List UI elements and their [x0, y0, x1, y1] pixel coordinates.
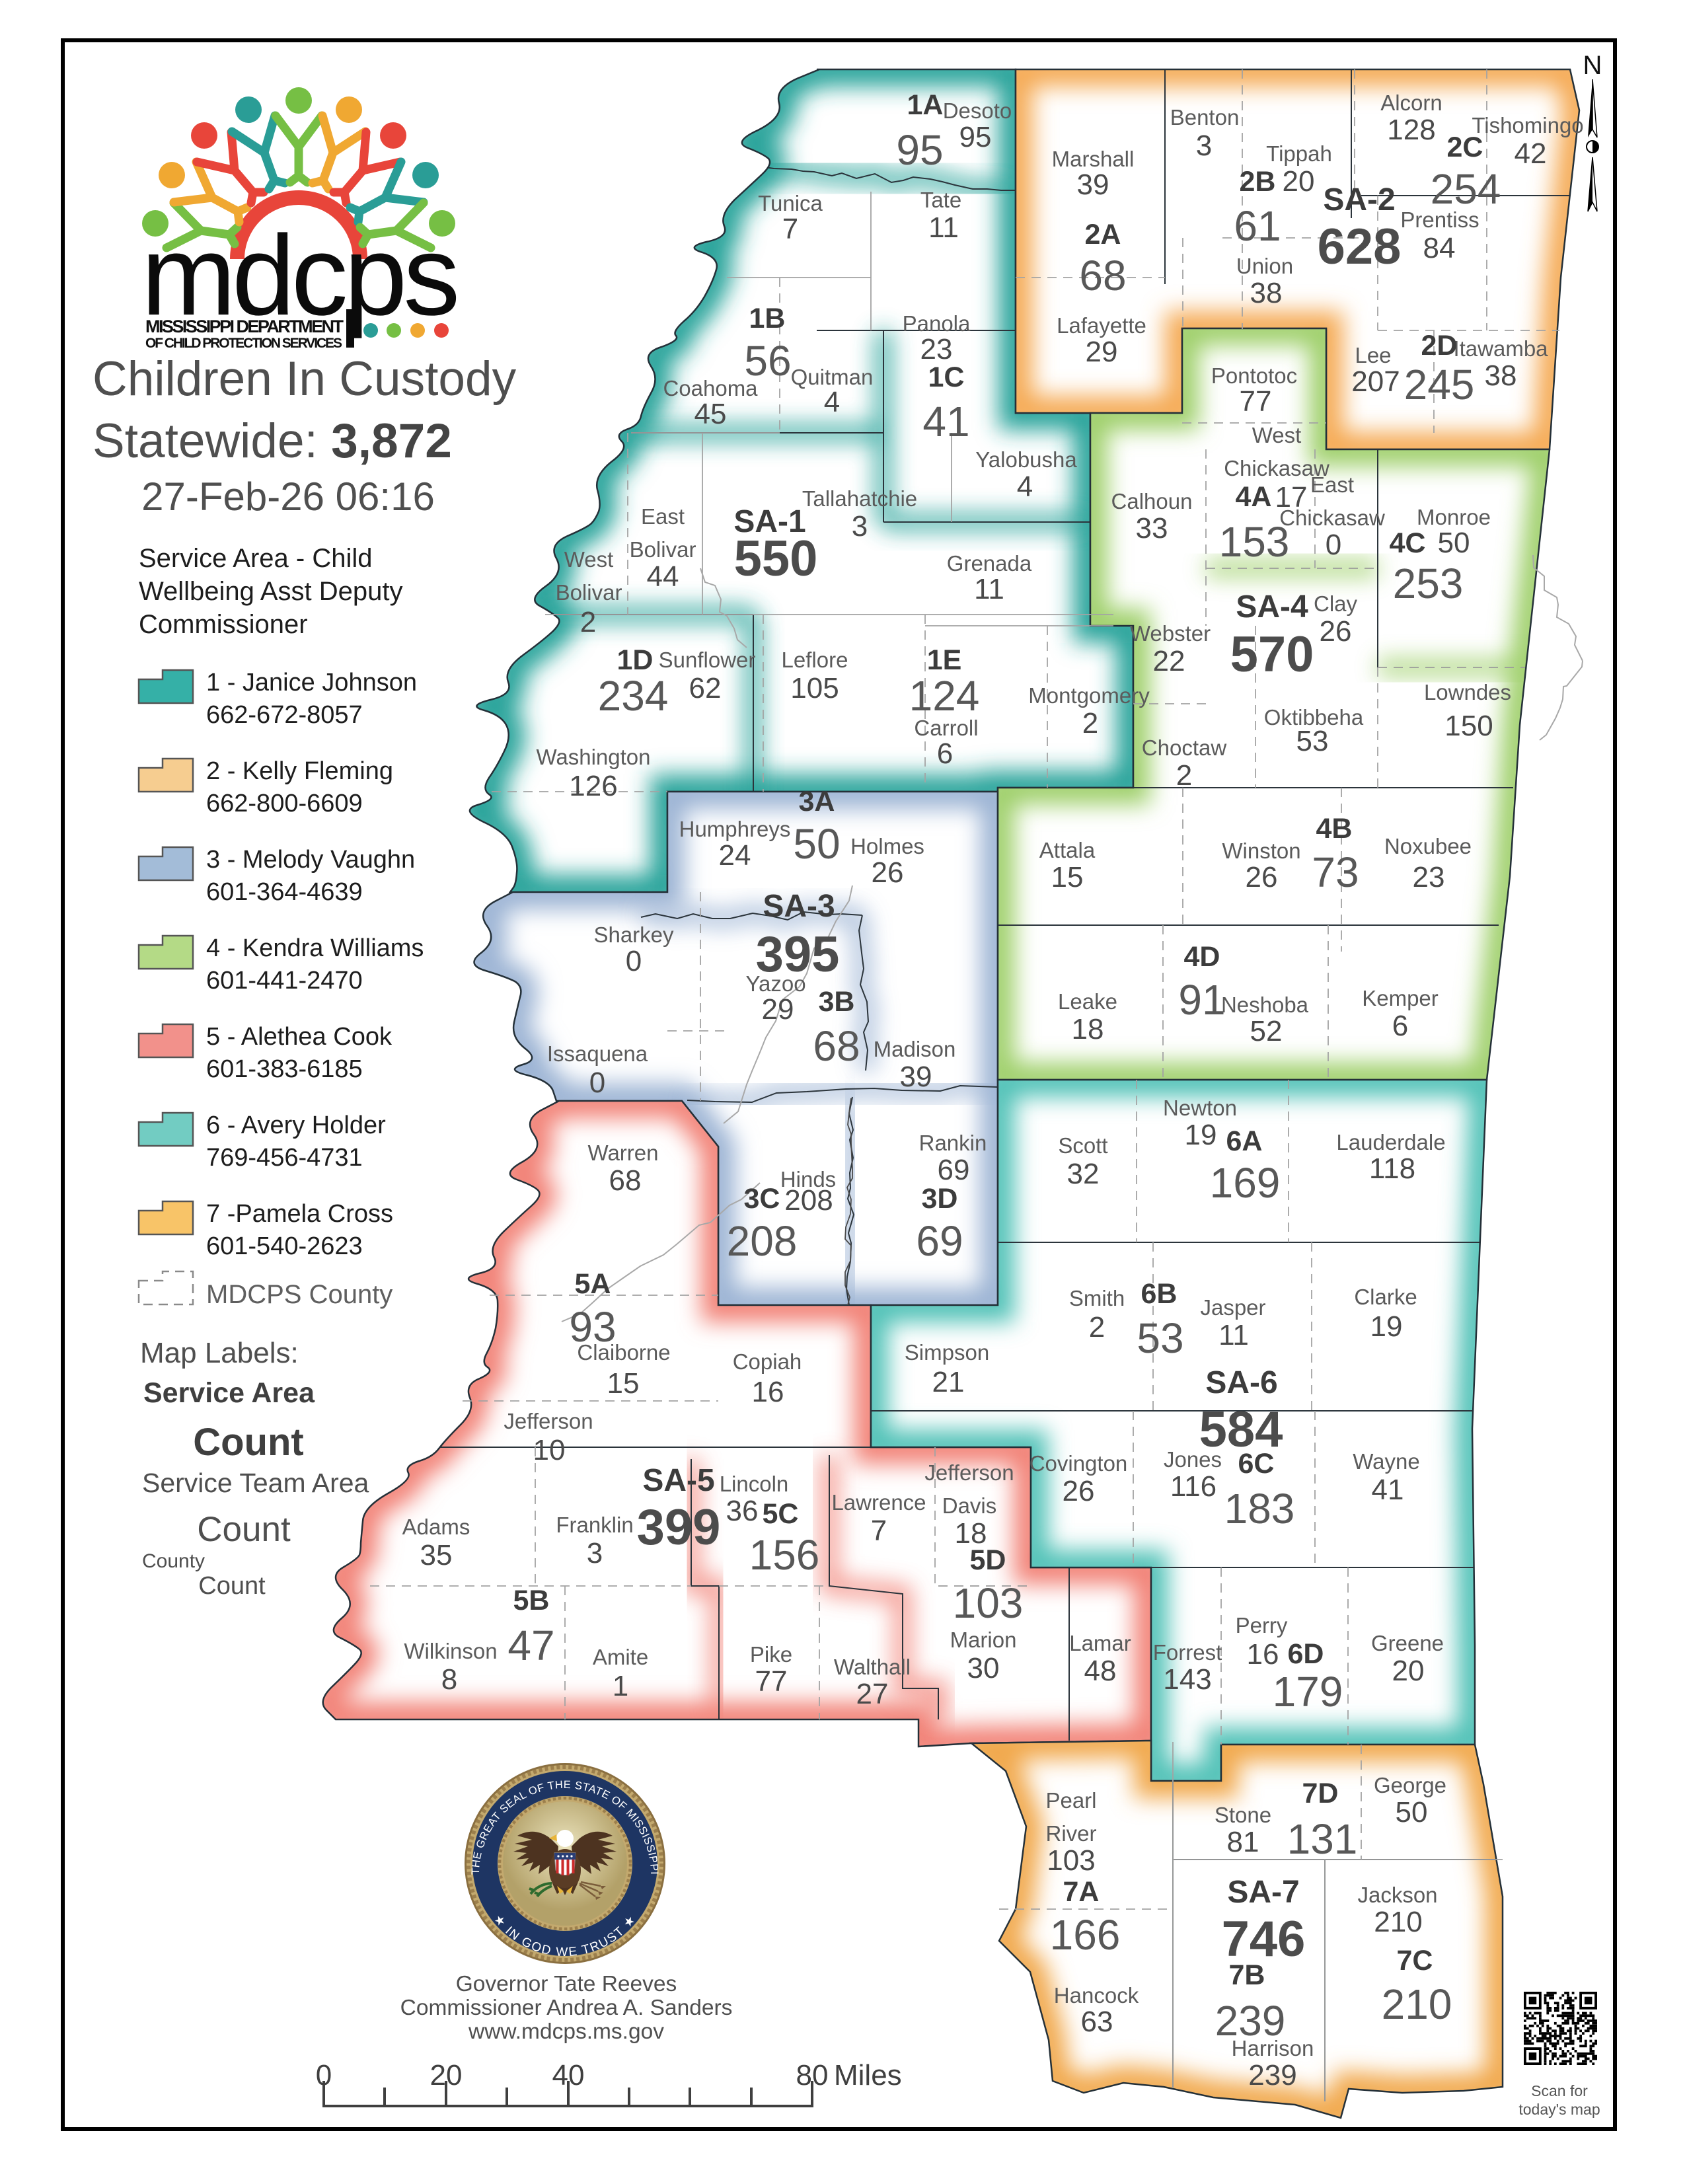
svg-text:Walthall: Walthall [834, 1655, 911, 1679]
svg-text:91: 91 [1178, 976, 1225, 1024]
svg-text:Pike: Pike [750, 1642, 792, 1667]
svg-text:1C: 1C [928, 361, 965, 393]
svg-text:166: 166 [1050, 1911, 1121, 1959]
svg-text:16: 16 [1247, 1638, 1279, 1671]
svg-text:Union: Union [1236, 254, 1293, 278]
svg-text:Panola: Panola [903, 311, 971, 336]
svg-text:19: 19 [1370, 1310, 1403, 1343]
svg-text:Attala: Attala [1039, 838, 1096, 862]
svg-text:Lee: Lee [1355, 343, 1391, 367]
svg-text:47: 47 [507, 1622, 554, 1669]
svg-text:234: 234 [598, 672, 669, 720]
svg-text:Miles: Miles [834, 2059, 902, 2091]
svg-text:River: River [1045, 1821, 1096, 1846]
svg-text:210: 210 [1374, 1906, 1422, 1938]
svg-text:SA-4: SA-4 [1236, 589, 1308, 624]
svg-text:Madison: Madison [874, 1037, 956, 1061]
svg-text:23: 23 [1413, 861, 1445, 893]
svg-text:Franklin: Franklin [556, 1513, 633, 1537]
svg-text:27: 27 [856, 1678, 889, 1710]
svg-text:2: 2 [1089, 1311, 1105, 1343]
svg-text:20: 20 [430, 2059, 463, 2091]
svg-text:Jackson: Jackson [1357, 1883, 1437, 1907]
svg-text:George: George [1374, 1773, 1446, 1797]
svg-text:126: 126 [569, 770, 617, 802]
svg-text:Chickasaw: Chickasaw [1279, 506, 1385, 530]
svg-text:Scan for: Scan for [1531, 2082, 1588, 2099]
svg-text:Clay: Clay [1314, 591, 1358, 616]
svg-text:Pontotoc: Pontotoc [1211, 363, 1297, 388]
svg-text:6 - Avery Holder: 6 - Avery Holder [206, 1111, 386, 1139]
svg-text:7: 7 [871, 1515, 887, 1547]
svg-text:SA-5: SA-5 [642, 1463, 714, 1498]
svg-text:2D: 2D [1421, 330, 1458, 361]
svg-text:3A: 3A [799, 786, 835, 817]
svg-text:Count: Count [197, 1510, 291, 1549]
svg-text:6: 6 [1392, 1010, 1408, 1042]
svg-text:Perry: Perry [1236, 1613, 1288, 1638]
svg-text:77: 77 [755, 1665, 788, 1698]
svg-text:746: 746 [1222, 1911, 1306, 1967]
svg-text:45: 45 [694, 398, 727, 430]
svg-text:103: 103 [1047, 1844, 1095, 1877]
svg-text:628: 628 [1318, 219, 1402, 275]
svg-text:Simpson: Simpson [905, 1340, 989, 1365]
svg-text:1 - Janice Johnson: 1 - Janice Johnson [206, 669, 417, 697]
svg-text:SA-7: SA-7 [1227, 1875, 1299, 1910]
svg-text:183: 183 [1224, 1485, 1295, 1532]
svg-text:21: 21 [932, 1366, 965, 1398]
svg-text:Humphreys: Humphreys [679, 817, 791, 841]
svg-text:50: 50 [793, 820, 840, 868]
svg-text:5A: 5A [575, 1268, 611, 1300]
svg-text:7D: 7D [1302, 1778, 1339, 1809]
svg-text:West: West [564, 547, 614, 572]
svg-text:www.mdcps.ms.gov: www.mdcps.ms.gov [468, 2019, 664, 2044]
svg-text:today's map: today's map [1518, 2101, 1600, 2118]
svg-text:570: 570 [1230, 626, 1314, 683]
svg-text:Marion: Marion [950, 1628, 1017, 1652]
svg-text:73: 73 [1312, 848, 1359, 896]
svg-text:Kemper: Kemper [1362, 986, 1439, 1010]
svg-text:Service Area: Service Area [143, 1377, 315, 1409]
svg-text:41: 41 [922, 398, 969, 445]
svg-text:Lowndes: Lowndes [1424, 680, 1511, 704]
svg-text:Bolivar: Bolivar [556, 580, 622, 605]
svg-text:53: 53 [1137, 1314, 1183, 1362]
svg-text:Lafayette: Lafayette [1057, 313, 1146, 338]
svg-text:Service Team Area: Service Team Area [142, 1468, 369, 1498]
svg-text:East: East [641, 504, 685, 529]
svg-text:SA-2: SA-2 [1323, 182, 1395, 217]
svg-text:Sharkey: Sharkey [593, 923, 674, 947]
svg-text:63: 63 [1081, 2006, 1113, 2038]
svg-text:93: 93 [569, 1303, 616, 1351]
svg-text:254: 254 [1431, 165, 1501, 213]
svg-text:11: 11 [1218, 1319, 1249, 1351]
svg-text:2: 2 [580, 606, 596, 638]
svg-text:Commissioner Andrea A. Sanders: Commissioner Andrea A. Sanders [400, 1996, 733, 2020]
svg-text:26: 26 [1246, 861, 1278, 893]
svg-text:7A: 7A [1063, 1876, 1100, 1908]
svg-text:Davis: Davis [942, 1493, 997, 1518]
svg-text:Scott: Scott [1058, 1133, 1107, 1158]
svg-text:Copiah: Copiah [733, 1349, 802, 1374]
svg-text:5D: 5D [970, 1544, 1006, 1576]
svg-text:36: 36 [726, 1495, 759, 1527]
svg-text:601-364-4639: 601-364-4639 [206, 878, 363, 906]
svg-text:4B: 4B [1316, 813, 1353, 845]
svg-text:80: 80 [796, 2059, 829, 2091]
svg-text:156: 156 [749, 1531, 820, 1579]
svg-text:208: 208 [784, 1184, 833, 1217]
svg-text:0: 0 [589, 1067, 605, 1099]
svg-text:81: 81 [1227, 1826, 1259, 1858]
svg-text:Rankin: Rankin [919, 1131, 987, 1155]
svg-text:Commissioner: Commissioner [139, 610, 308, 639]
svg-text:15: 15 [1051, 861, 1084, 893]
svg-text:Webster: Webster [1130, 621, 1211, 646]
svg-text:Montgomery: Montgomery [1028, 683, 1150, 708]
svg-text:4C: 4C [1390, 527, 1426, 559]
svg-text:143: 143 [1163, 1663, 1211, 1696]
svg-text:179: 179 [1273, 1668, 1343, 1715]
svg-text:84: 84 [1423, 232, 1456, 264]
svg-text:1D: 1D [617, 644, 654, 676]
svg-text:Lauderdale: Lauderdale [1336, 1130, 1445, 1154]
svg-text:OF CHILD PROTECTION SERVICES: OF CHILD PROTECTION SERVICES [145, 336, 342, 351]
svg-text:2B: 2B [1240, 166, 1276, 198]
svg-text:Wayne: Wayne [1353, 1449, 1419, 1474]
svg-text:Smith: Smith [1069, 1286, 1125, 1310]
svg-text:169: 169 [1210, 1159, 1281, 1207]
svg-text:3 - Melody Vaughn: 3 - Melody Vaughn [206, 846, 415, 874]
svg-text:Pearl: Pearl [1045, 1788, 1096, 1813]
svg-text:N: N [1583, 51, 1602, 80]
svg-text:7 -Pamela Cross: 7 -Pamela Cross [206, 1200, 393, 1228]
svg-text:Greene: Greene [1371, 1631, 1444, 1655]
svg-text:Warren: Warren [588, 1141, 659, 1165]
svg-text:32: 32 [1067, 1158, 1100, 1190]
svg-text:69: 69 [938, 1154, 970, 1186]
svg-text:Clarke: Clarke [1354, 1285, 1417, 1309]
svg-text:29: 29 [1086, 336, 1118, 368]
svg-text:Sunflower: Sunflower [659, 648, 756, 672]
svg-text:3: 3 [1196, 130, 1212, 162]
svg-text:395: 395 [756, 926, 840, 983]
svg-text:95: 95 [896, 126, 943, 174]
svg-text:3D: 3D [922, 1183, 958, 1215]
svg-text:207: 207 [1351, 365, 1400, 398]
svg-text:Governor Tate Reeves: Governor Tate Reeves [456, 1972, 677, 1996]
svg-text:53: 53 [1296, 725, 1329, 757]
svg-text:3: 3 [852, 510, 868, 543]
svg-text:68: 68 [609, 1164, 642, 1197]
svg-text:2: 2 [1082, 707, 1098, 739]
svg-text:26: 26 [872, 856, 904, 889]
svg-text:Holmes: Holmes [850, 834, 924, 858]
svg-text:0: 0 [626, 945, 642, 977]
svg-text:Tunica: Tunica [758, 191, 823, 215]
svg-text:239: 239 [1215, 1997, 1286, 2045]
svg-text:601-540-2623: 601-540-2623 [206, 1232, 363, 1260]
svg-text:4: 4 [824, 386, 840, 418]
svg-text:48: 48 [1084, 1655, 1117, 1687]
svg-text:77: 77 [1240, 385, 1272, 418]
svg-text:1: 1 [613, 1670, 628, 1702]
svg-text:Wilkinson: Wilkinson [404, 1639, 497, 1663]
svg-text:6B: 6B [1141, 1278, 1178, 1310]
svg-text:150: 150 [1444, 710, 1493, 742]
svg-text:2: 2 [1176, 759, 1192, 792]
svg-text:4: 4 [1017, 471, 1033, 503]
svg-text:Itawamba: Itawamba [1453, 336, 1548, 361]
svg-text:69: 69 [916, 1217, 963, 1265]
svg-text:Covington: Covington [1030, 1451, 1128, 1476]
svg-text:23: 23 [920, 333, 953, 365]
svg-text:601-441-2470: 601-441-2470 [206, 967, 363, 995]
svg-text:24: 24 [719, 839, 751, 872]
svg-text:208: 208 [727, 1217, 798, 1265]
svg-text:Forrest: Forrest [1153, 1640, 1222, 1665]
svg-text:5B: 5B [513, 1585, 550, 1616]
svg-text:50: 50 [1438, 527, 1470, 559]
svg-text:Lincoln: Lincoln [720, 1472, 789, 1496]
svg-text:26: 26 [1320, 615, 1352, 648]
svg-text:68: 68 [1079, 252, 1126, 299]
svg-text:39: 39 [1077, 169, 1109, 201]
svg-text:Statewide: 3,872: Statewide: 3,872 [93, 414, 452, 468]
svg-text:601-383-6185: 601-383-6185 [206, 1055, 363, 1083]
svg-text:Tate: Tate [920, 188, 961, 212]
svg-text:39: 39 [900, 1061, 932, 1093]
svg-text:124: 124 [909, 672, 980, 720]
svg-text:Tallahatchie: Tallahatchie [802, 486, 917, 511]
svg-text:399: 399 [637, 1499, 721, 1556]
svg-text:118: 118 [1369, 1152, 1415, 1185]
svg-text:Hancock: Hancock [1054, 1983, 1139, 2008]
svg-text:131: 131 [1287, 1815, 1358, 1863]
svg-text:27-Feb-26 06:16: 27-Feb-26 06:16 [141, 474, 435, 519]
svg-text:Calhoun: Calhoun [1111, 489, 1193, 513]
svg-text:662-800-6609: 662-800-6609 [206, 790, 363, 817]
svg-text:Jefferson: Jefferson [924, 1460, 1014, 1485]
svg-text:Lawrence: Lawrence [831, 1490, 926, 1515]
svg-text:Wellbeing Asst Deputy: Wellbeing Asst Deputy [139, 577, 402, 606]
svg-text:Issaquena: Issaquena [547, 1041, 648, 1066]
svg-text:52: 52 [1250, 1015, 1283, 1047]
svg-text:38: 38 [1485, 359, 1517, 392]
svg-text:15: 15 [607, 1367, 640, 1400]
svg-text:5 - Alethea Cook: 5 - Alethea Cook [206, 1023, 393, 1051]
svg-text:Marshall: Marshall [1052, 147, 1135, 171]
svg-text:Monroe: Monroe [1417, 505, 1491, 529]
svg-text:Tippah: Tippah [1266, 141, 1332, 166]
svg-text:26: 26 [1063, 1475, 1095, 1507]
svg-text:10: 10 [533, 1434, 566, 1466]
svg-text:0: 0 [316, 2059, 332, 2091]
svg-text:153: 153 [1219, 518, 1290, 566]
svg-text:19: 19 [1185, 1119, 1217, 1151]
svg-text:Noxubee: Noxubee [1384, 834, 1472, 858]
svg-text:SA-3: SA-3 [763, 889, 835, 924]
svg-text:Tishomingo: Tishomingo [1472, 113, 1583, 137]
svg-text:22: 22 [1153, 645, 1185, 677]
svg-text:3B: 3B [819, 986, 855, 1018]
svg-text:6A: 6A [1226, 1125, 1263, 1157]
svg-text:128: 128 [1387, 114, 1435, 146]
svg-text:Washington: Washington [536, 745, 650, 769]
svg-text:105: 105 [790, 672, 839, 704]
svg-text:29: 29 [762, 993, 794, 1026]
svg-text:38: 38 [1250, 277, 1283, 309]
svg-text:56: 56 [744, 337, 791, 385]
svg-text:245: 245 [1404, 361, 1475, 408]
svg-text:Service Area - Child: Service Area - Child [139, 544, 372, 573]
svg-text:MDCPS County: MDCPS County [206, 1280, 393, 1309]
svg-text:4D: 4D [1184, 941, 1220, 973]
svg-text:6D: 6D [1288, 1638, 1324, 1670]
svg-text:Desoto: Desoto [943, 98, 1012, 123]
svg-text:769-456-4731: 769-456-4731 [206, 1144, 363, 1172]
svg-text:41: 41 [1372, 1474, 1404, 1506]
svg-text:61: 61 [1234, 202, 1281, 250]
svg-text:50: 50 [1396, 1796, 1428, 1828]
svg-text:103: 103 [953, 1579, 1024, 1627]
svg-text:2A: 2A [1085, 219, 1121, 250]
svg-text:11: 11 [974, 573, 1004, 605]
svg-text:662-672-8057: 662-672-8057 [206, 701, 363, 729]
svg-text:Leflore: Leflore [782, 648, 848, 672]
svg-text:1B: 1B [749, 303, 786, 334]
svg-text:Jasper: Jasper [1200, 1295, 1265, 1320]
svg-text:30: 30 [967, 1652, 1000, 1684]
svg-text:2C: 2C [1447, 132, 1483, 163]
svg-text:Count: Count [193, 1421, 304, 1464]
svg-text:Map Labels:: Map Labels: [140, 1337, 299, 1369]
svg-text:Alcorn: Alcorn [1380, 91, 1442, 115]
svg-text:44: 44 [647, 560, 679, 593]
svg-text:20: 20 [1283, 165, 1315, 198]
svg-text:584: 584 [1199, 1402, 1283, 1458]
svg-text:550: 550 [734, 531, 818, 587]
svg-text:East: East [1310, 472, 1354, 497]
svg-text:210: 210 [1382, 1980, 1452, 2028]
svg-text:Count: Count [198, 1572, 266, 1600]
svg-text:Jefferson: Jefferson [504, 1409, 593, 1433]
svg-text:4 - Kendra Williams: 4 - Kendra Williams [206, 934, 424, 962]
svg-text:0: 0 [1326, 529, 1341, 561]
svg-text:7: 7 [782, 213, 798, 245]
svg-text:253: 253 [1393, 560, 1464, 607]
svg-text:239: 239 [1248, 2059, 1296, 2091]
svg-text:11: 11 [928, 211, 959, 244]
svg-text:62: 62 [689, 672, 722, 704]
svg-text:Stone: Stone [1215, 1803, 1271, 1827]
svg-text:Bolivar: Bolivar [630, 537, 696, 562]
svg-text:County: County [142, 1550, 205, 1572]
svg-text:3: 3 [587, 1537, 603, 1569]
svg-text:SA-6: SA-6 [1205, 1365, 1277, 1400]
svg-text:6: 6 [937, 737, 953, 770]
svg-text:MISSISSIPPI DEPARTMENT: MISSISSIPPI DEPARTMENT [145, 317, 344, 336]
svg-text:Yalobusha: Yalobusha [975, 447, 1077, 472]
svg-text:1A: 1A [907, 89, 944, 121]
svg-text:Benton: Benton [1170, 105, 1240, 130]
svg-text:35: 35 [420, 1539, 453, 1571]
svg-text:116: 116 [1170, 1470, 1217, 1503]
svg-text:West: West [1252, 423, 1302, 447]
svg-text:40: 40 [552, 2059, 585, 2091]
svg-text:42: 42 [1515, 137, 1547, 170]
svg-text:Grenada: Grenada [947, 551, 1032, 576]
svg-text:20: 20 [1392, 1655, 1425, 1687]
svg-text:Newton: Newton [1163, 1096, 1237, 1120]
svg-text:18: 18 [1072, 1013, 1104, 1045]
svg-text:8: 8 [441, 1663, 457, 1696]
svg-text:Choctaw: Choctaw [1142, 735, 1227, 760]
svg-text:1E: 1E [927, 644, 962, 676]
svg-text:Leake: Leake [1058, 989, 1117, 1014]
svg-text:5C: 5C [763, 1498, 799, 1530]
svg-text:4A: 4A [1236, 481, 1272, 513]
svg-text:33: 33 [1136, 512, 1168, 545]
svg-text:Lamar: Lamar [1069, 1631, 1131, 1655]
svg-text:2 - Kelly Fleming: 2 - Kelly Fleming [206, 757, 393, 785]
svg-text:Neshoba: Neshoba [1221, 993, 1309, 1017]
svg-text:16: 16 [752, 1376, 784, 1408]
svg-text:Amite: Amite [593, 1645, 648, 1669]
svg-text:68: 68 [813, 1022, 860, 1070]
svg-text:Winston: Winston [1222, 839, 1300, 863]
svg-text:7C: 7C [1397, 1945, 1433, 1977]
svg-text:Adams: Adams [402, 1515, 470, 1539]
svg-text:Children In Custody: Children In Custody [93, 352, 517, 406]
svg-text:3C: 3C [744, 1183, 780, 1215]
svg-text:95: 95 [959, 121, 992, 153]
